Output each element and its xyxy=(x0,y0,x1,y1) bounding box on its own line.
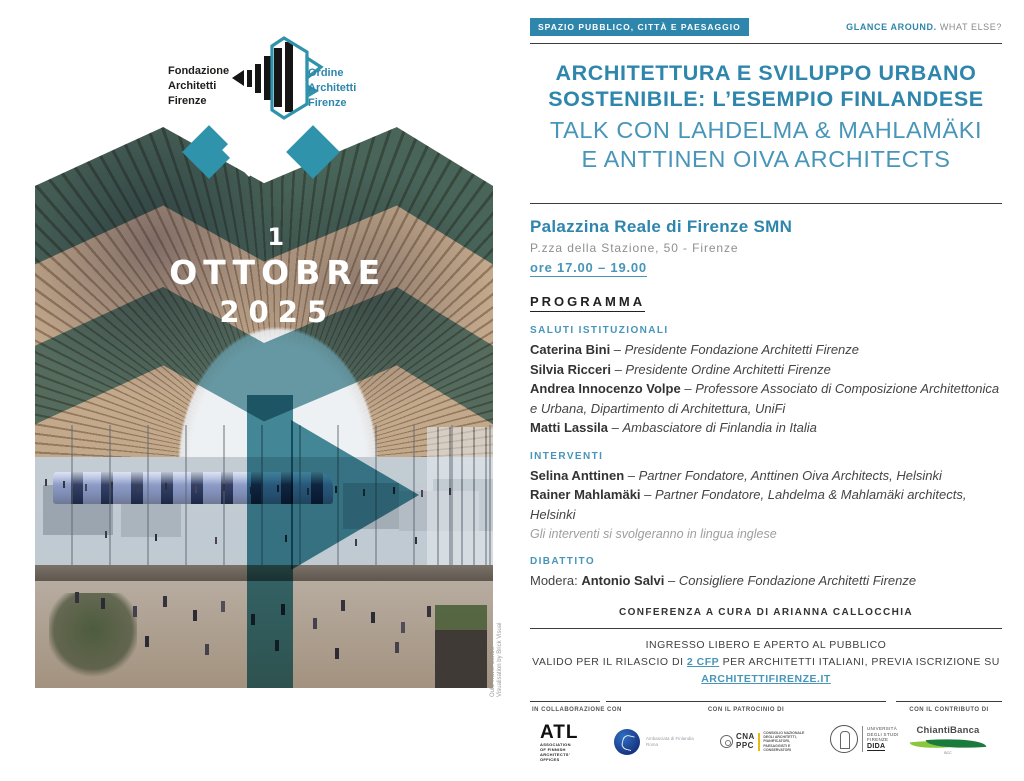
title-line-1: ARCHITETTURA E SVILUPPO URBANO xyxy=(530,60,1002,86)
chiantibanca-logo: ChiantiBanca BCC xyxy=(908,725,988,755)
patronage-label: CON IL PATROCINIO DI xyxy=(605,707,887,713)
speaker-role: Partner Fondatore, Anttinen Oiva Archite… xyxy=(639,468,942,483)
program-section-interventi: INTERVENTISelina Anttinen – Partner Fond… xyxy=(530,451,1002,544)
brand-glance-around: GLANCE AROUND. xyxy=(846,22,937,32)
cfp-link[interactable]: 2 CFP xyxy=(687,656,719,668)
program-sections: SALUTI ISTITUZIONALICaterina Bini – Pres… xyxy=(530,325,1002,591)
teal-arrow-stem xyxy=(247,395,293,688)
section-title: DIBATTITO xyxy=(530,556,1002,567)
date-day: 1 xyxy=(62,222,493,252)
title-block: ARCHITETTURA E SVILUPPO URBANO SOSTENIBI… xyxy=(530,60,1002,174)
architettifirenze-link[interactable]: ARCHITETTIFIRENZE.IT xyxy=(701,673,831,685)
speaker-name: Rainer Mahlamäki xyxy=(530,487,641,502)
cnappc-subtext: CONSIGLIO NAZIONALE DEGLI ARCHITETTI, PI… xyxy=(763,731,804,753)
speaker-name: Andrea Innocenzo Volpe xyxy=(530,381,681,396)
atl-subtext: ASSOCIATION OF FINNISH ARCHITECTS’ OFFIC… xyxy=(540,742,579,762)
admission-info: INGRESSO LIBERO E APERTO AL PUBBLICO VAL… xyxy=(530,637,1002,688)
photo-credit-line: Visualisation by Brick Visual xyxy=(497,597,504,697)
partner-divider xyxy=(530,701,600,702)
finland-emblem-icon xyxy=(614,729,640,755)
brand-tagline: GLANCE AROUND. WHAT ELSE? xyxy=(846,22,1002,32)
cnappc-emblem-icon xyxy=(720,735,733,748)
title-line-2: SOSTENIBILE: L’ESEMPIO FINLANDESE xyxy=(530,86,1002,112)
embassy-name: Ambasciata di Finlandia Roma xyxy=(646,736,694,748)
tree-graphic xyxy=(49,593,137,681)
atl-logo: ATL ASSOCIATION OF FINNISH ARCHITECTS’ O… xyxy=(540,723,579,762)
people-platform-graphic xyxy=(45,479,47,486)
speaker-role: Presidente Ordine Architetti Firenze xyxy=(625,362,830,377)
org-left-line: Architetti xyxy=(168,79,229,94)
event-subtitle: TALK CON LAHDELMA & MAHLAMÄKI E ANTTINEN… xyxy=(530,116,1002,174)
org-right-line: Architetti xyxy=(308,81,356,96)
speaker-row: Silvia Ricceri – Presidente Ordine Archi… xyxy=(530,360,1002,380)
atl-wordmark: ATL xyxy=(540,723,579,742)
separator: – xyxy=(611,362,625,377)
speaker-row: Caterina Bini – Presidente Fondazione Ar… xyxy=(530,340,1002,360)
divider xyxy=(530,628,1002,629)
separator: – xyxy=(681,381,695,396)
speaker-row: Rainer Mahlamäki – Partner Fondatore, La… xyxy=(530,485,1002,524)
speaker-role: Presidente Fondazione Architetti Firenze xyxy=(625,342,859,357)
unifi-seal-icon xyxy=(830,725,858,753)
separator: – xyxy=(610,342,624,357)
speaker-role: Consigliere Fondazione Architetti Firenz… xyxy=(679,573,916,588)
speaker-name: Matti Lassila xyxy=(530,420,608,435)
cnappc-logo: CNA PPC CONSIGLIO NAZIONALE DEGLI ARCHIT… xyxy=(720,731,804,753)
contribution-label: CON IL CONTRIBUTO DI xyxy=(896,707,1002,713)
org-left-line: Firenze xyxy=(168,94,229,109)
finland-embassy-logo: Ambasciata di Finlandia Roma xyxy=(614,729,694,755)
partner-divider xyxy=(896,701,1002,702)
cfp-text: PER ARCHITETTI ITALIANI, PREVIA ISCRIZIO… xyxy=(719,656,1000,668)
venue-name: Palazzina Reale di Firenze SMN xyxy=(530,217,1002,237)
cnappc-letters: CNA PPC xyxy=(736,733,755,750)
separator: – xyxy=(641,487,655,502)
photo-credit: Oulu Travel Centre Visualisation by Bric… xyxy=(490,597,504,697)
speaker-row: Selina Anttinen – Partner Fondatore, Ant… xyxy=(530,466,1002,486)
separator: – xyxy=(608,420,622,435)
free-entry-line: INGRESSO LIBERO E APERTO AL PUBBLICO xyxy=(530,637,1002,654)
subtitle-line-1: TALK CON LAHDELMA & MAHLAMÄKI xyxy=(530,116,1002,145)
subtitle-line-2: E ANTTINEN OIVA ARCHITECTS xyxy=(530,145,1002,174)
cnappc-bar xyxy=(758,733,761,751)
series-badge: SPAZIO PUBBLICO, CITTÀ E PAESAGGIO xyxy=(530,18,749,36)
program-section-saluti: SALUTI ISTITUZIONALICaterina Bini – Pres… xyxy=(530,325,1002,438)
poster-photo-oulu-travel-centre: 1 OTTOBRE 2025 xyxy=(35,127,493,688)
separator: – xyxy=(664,573,678,588)
unifi-dida: DIDA xyxy=(867,744,885,751)
speaker-name: Antonio Salvi xyxy=(581,573,664,588)
cfp-line: VALIDO PER IL RILASCIO DI 2 CFP PER ARCH… xyxy=(530,654,1002,688)
event-details-panel: SPAZIO PUBBLICO, CITTÀ E PAESAGGIO GLANC… xyxy=(530,18,1002,781)
photo-credit-line: Oulu Travel Centre xyxy=(490,597,497,697)
cfp-text: VALIDO PER IL RILASCIO DI xyxy=(532,656,687,668)
divider xyxy=(530,203,1002,204)
venue-block: Palazzina Reale di Firenze SMN P.zza del… xyxy=(530,217,1002,277)
speaker-row: Matti Lassila – Ambasciatore di Finlandi… xyxy=(530,418,1002,438)
speaker-name: Selina Anttinen xyxy=(530,468,624,483)
unifi-divider xyxy=(862,726,863,752)
org-right-line: Ordine xyxy=(308,66,356,81)
people-plaza-graphic xyxy=(75,592,79,603)
event-time: ore 17.00 – 19.00 xyxy=(530,260,647,277)
planter-graphic xyxy=(435,605,487,688)
organizers-header: Fondazione Architetti Firenze Ordine Arc… xyxy=(168,56,398,126)
program-section-dibattito: DIBATTITOModera: Antonio Salvi – Consigl… xyxy=(530,556,1002,591)
separator: – xyxy=(624,468,638,483)
section-title: INTERVENTI xyxy=(530,451,1002,462)
curator-credit: CONFERENZA A CURA DI ARIANNA CALLOCCHIA xyxy=(530,607,1002,618)
event-date: 1 OTTOBRE 2025 xyxy=(35,222,493,330)
ordine-architetti-firenze-wordmark: Ordine Architetti Firenze xyxy=(308,66,356,111)
masthead: SPAZIO PUBBLICO, CITTÀ E PAESAGGIO GLANC… xyxy=(530,18,1002,36)
divider xyxy=(530,43,1002,44)
language-note: Gli interventi si svolgeranno in lingua … xyxy=(530,525,1002,543)
program-heading: PROGRAMMA xyxy=(530,294,645,312)
speaker-name: Silvia Ricceri xyxy=(530,362,611,377)
date-year: 2025 xyxy=(62,294,493,330)
date-month: OTTOBRE xyxy=(62,252,493,294)
brand-what-else: WHAT ELSE? xyxy=(940,22,1002,32)
chiantibanca-wordmark: ChiantiBanca xyxy=(908,725,988,736)
unifi-logo: UNIVERSITÀ DEGLI STUDI FIRENZE DIDA xyxy=(830,725,899,753)
partners-strip: IN COLLABORAZIONE CON CON IL PATROCINIO … xyxy=(530,701,1002,781)
event-title: ARCHITETTURA E SVILUPPO URBANO SOSTENIBI… xyxy=(530,60,1002,112)
partner-divider xyxy=(606,701,886,702)
speaker-row: Andrea Innocenzo Volpe – Professore Asso… xyxy=(530,379,1002,418)
org-left-line: Fondazione xyxy=(168,64,229,79)
speaker-role: Ambasciatore di Finlandia in Italia xyxy=(623,420,817,435)
chiantibanca-subtext: BCC xyxy=(908,751,988,755)
section-title: SALUTI ISTITUZIONALI xyxy=(530,325,1002,336)
unifi-name: UNIVERSITÀ DEGLI STUDI FIRENZE DIDA xyxy=(867,726,899,751)
speaker-row: Modera: Antonio Salvi – Consigliere Fond… xyxy=(530,571,1002,591)
venue-address: P.zza della Stazione, 50 - Firenze xyxy=(530,241,1002,255)
fondazione-architetti-firenze-wordmark: Fondazione Architetti Firenze xyxy=(168,64,229,109)
org-right-line: Firenze xyxy=(308,96,356,111)
speaker-name: Caterina Bini xyxy=(530,342,610,357)
moderator-prefix: Modera: xyxy=(530,573,581,588)
chiantibanca-leaf-icon xyxy=(910,737,986,750)
